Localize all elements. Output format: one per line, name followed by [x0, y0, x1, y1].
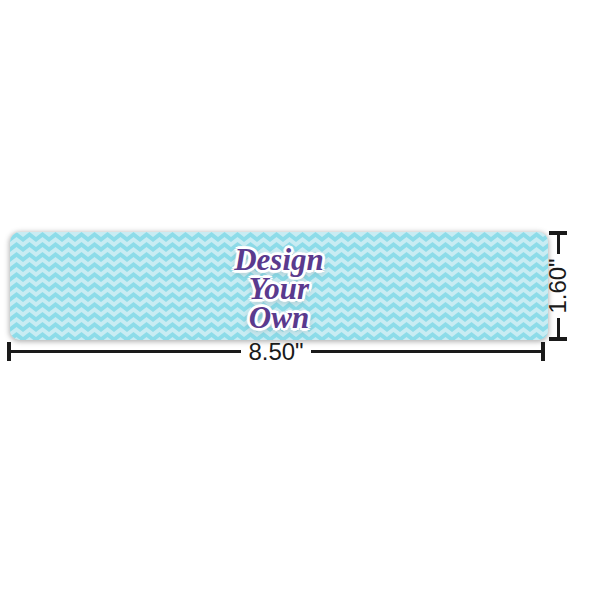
height-dimension-label-box: 1.60" — [549, 254, 567, 318]
product-preview-canvas: Design Your Own 8.50" 1.60" — [0, 0, 600, 600]
width-dimension-right-cap — [541, 342, 545, 361]
height-dimension-annotation: 1.60" — [549, 231, 567, 341]
height-dimension-line-bottom — [557, 318, 560, 337]
label-text-line-2: Your — [249, 274, 309, 303]
label-text-line-1: Design — [234, 245, 324, 274]
label-text: Design Your Own — [10, 232, 548, 340]
width-dimension-annotation: 8.50" — [7, 342, 545, 361]
height-dimension-bottom-cap — [549, 337, 567, 341]
label-preview: Design Your Own — [10, 232, 548, 340]
width-dimension-label: 8.50" — [241, 338, 310, 366]
height-dimension-line-top — [557, 235, 560, 254]
width-dimension-line-left — [11, 350, 241, 353]
height-dimension-label: 1.60" — [544, 258, 572, 313]
label-text-line-3: Own — [249, 303, 309, 332]
width-dimension-line-right — [311, 350, 541, 353]
